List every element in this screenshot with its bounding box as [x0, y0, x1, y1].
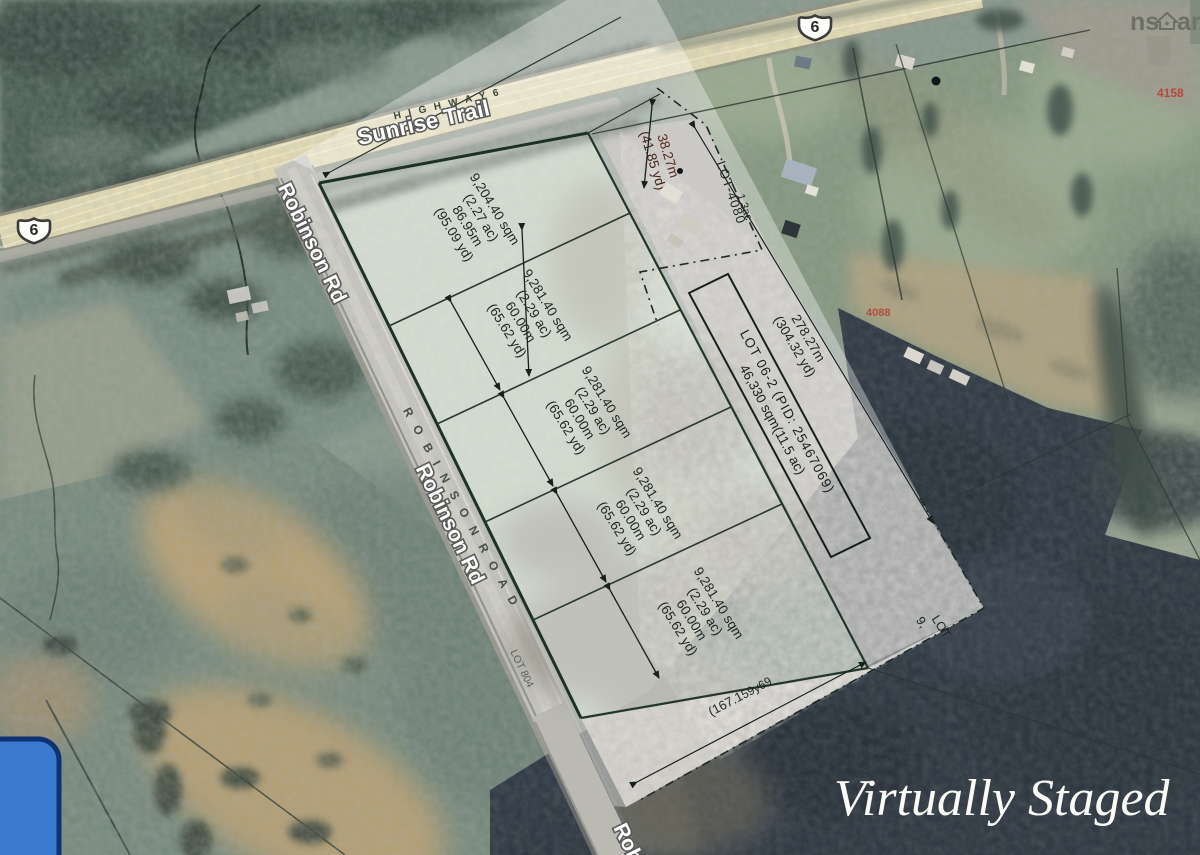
svg-text:ns: ns: [1130, 8, 1159, 36]
svg-text:4088: 4088: [866, 307, 890, 319]
svg-text:6: 6: [30, 222, 39, 239]
svg-text:4158: 4158: [1157, 86, 1184, 100]
svg-text:6: 6: [811, 19, 820, 36]
svg-text:Virtually Staged: Virtually Staged: [834, 770, 1171, 827]
